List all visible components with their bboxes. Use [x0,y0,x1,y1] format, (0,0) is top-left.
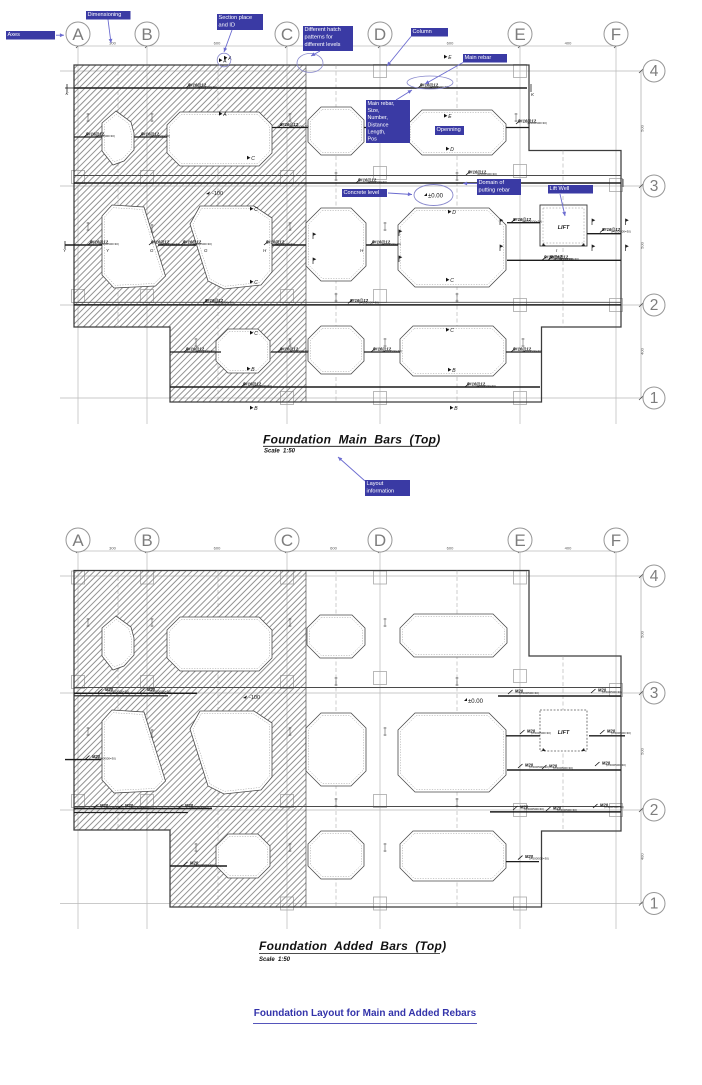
svg-text:(l=500/500=30): (l=500/500=30) [194,863,214,867]
svg-text:(l=500/500=30): (l=500/500=30) [557,808,577,812]
svg-text:Foundation Added Bars (Top): Foundation Added Bars (Top) [259,939,446,953]
svg-text:F: F [611,531,621,550]
svg-text:Scale 1:50: Scale 1:50 [264,449,296,455]
svg-text:Distance: Distance [368,122,389,128]
svg-text:A: A [222,112,227,118]
svg-text:600: 600 [214,41,221,46]
svg-text:(l=500/500=30): (l=500/500=30) [214,300,234,304]
svg-text:(l=500/500=30): (l=500/500=30) [359,300,379,304]
svg-text:500: 500 [640,630,645,637]
svg-text:(l=500/500=30): (l=500/500=30) [553,257,573,261]
svg-text:A: A [222,59,227,65]
svg-text:(l=500/500=30): (l=500/500=30) [382,349,402,353]
svg-text:(l=500/500=30): (l=500/500=30) [527,121,547,125]
svg-text:(l=500/500=30): (l=500/500=30) [189,805,209,809]
svg-text:(l=500/500=30): (l=500/500=30) [522,349,542,353]
svg-text:(l=500/500=30): (l=500/500=30) [275,242,295,246]
svg-text:LIFT: LIFT [558,225,570,231]
svg-text:(l=500/500=30): (l=500/500=30) [553,766,573,770]
svg-text:G: G [150,248,154,253]
svg-text:Scale 1:50: Scale 1:50 [259,957,291,963]
svg-text:Domain of: Domain of [479,180,505,186]
svg-text:putting rebar: putting rebar [479,188,511,194]
svg-text:4: 4 [650,568,659,585]
svg-text:C: C [251,156,255,162]
svg-text:Foundation Layout for Main and: Foundation Layout for Main and Added Reb… [254,1008,477,1019]
svg-text:(l=500/500=30): (l=500/500=30) [476,384,496,388]
svg-text:Lift Well: Lift Well [550,186,570,192]
svg-text:(l=500/500=30): (l=500/500=30) [151,689,171,693]
svg-text:F: F [611,25,621,44]
svg-text:500: 500 [640,124,645,131]
svg-text:2: 2 [650,297,659,314]
svg-text:1: 1 [650,390,659,407]
svg-text:G: G [204,248,208,253]
svg-text:(l=500/500=30): (l=500/500=30) [529,856,549,860]
svg-text:(l=500/500=30): (l=500/500=30) [96,756,116,760]
svg-text:(l=500/500=30): (l=500/500=30) [195,349,215,353]
svg-text:(l=500/500=30): (l=500/500=30) [150,134,170,138]
svg-text:C: C [450,328,454,334]
svg-text:E: E [514,25,525,44]
svg-text:600: 600 [447,546,454,551]
svg-text:600: 600 [214,546,221,551]
svg-text:400: 400 [565,41,572,46]
svg-text:Concrete level: Concrete level [344,190,380,196]
svg-text:(l=500/500=30): (l=500/500=30) [611,229,631,233]
svg-text:(l=500/500=30): (l=500/500=30) [95,134,115,138]
svg-text:B: B [141,25,152,44]
svg-text:(l=500/500=30): (l=500/500=30) [524,807,544,811]
svg-text:(l=500/500=30): (l=500/500=30) [99,242,119,246]
svg-text:(l=500/500=30): (l=500/500=30) [381,242,401,246]
svg-text:(l=500/500=30): (l=500/500=30) [477,172,497,176]
svg-text:different levels: different levels [305,42,341,48]
svg-text:(l=500/500=30): (l=500/500=30) [252,384,272,388]
svg-text:C: C [254,280,258,286]
svg-text:4: 4 [650,63,659,80]
svg-text:(l=500/500=30): (l=500/500=30) [611,731,631,735]
svg-text:Axes: Axes [8,32,21,38]
svg-text:C: C [450,278,454,284]
svg-text:(l=500/500=30): (l=500/500=30) [109,689,129,693]
svg-text:C: C [254,207,258,213]
svg-text:Size,: Size, [368,108,380,114]
svg-text:Column: Column [413,29,432,35]
svg-text:3: 3 [650,685,659,702]
svg-text:(l=500/500=30): (l=500/500=30) [129,805,149,809]
svg-text:information: information [367,489,395,495]
svg-text:400: 400 [640,853,645,860]
svg-text:Section place: Section place [219,15,253,21]
svg-text:B: B [141,531,152,550]
svg-text:Different hatch: Different hatch [305,27,341,33]
svg-text:1: 1 [650,896,659,913]
svg-text:600: 600 [447,41,454,46]
svg-text:A: A [72,531,84,550]
svg-text:2: 2 [650,802,659,819]
svg-text:Number,: Number, [368,115,389,121]
svg-text:Main rebar: Main rebar [465,55,492,61]
svg-text:Pos: Pos [368,137,378,143]
svg-text:(l=500/500=30): (l=500/500=30) [367,180,387,184]
svg-text:600: 600 [330,546,337,551]
svg-text:500: 500 [640,747,645,754]
svg-text:C: C [254,331,258,337]
svg-text:LIFT: LIFT [558,730,570,736]
svg-text:3: 3 [650,178,659,195]
svg-text:C: C [281,531,293,550]
svg-text:D: D [374,531,386,550]
svg-text:A: A [227,56,232,62]
svg-text:Length,: Length, [368,130,386,136]
svg-text:patterns for: patterns for [305,35,333,41]
svg-text:E: E [514,531,525,550]
svg-text:Foundation Main Bars (Top): Foundation Main Bars (Top) [263,432,441,446]
svg-text:(l=500/500=30): (l=500/500=30) [289,349,309,353]
svg-text:A: A [72,25,84,44]
svg-text:(l=500/500=30): (l=500/500=30) [606,763,626,767]
svg-text:-100: -100 [249,695,260,701]
svg-text:D: D [374,25,386,44]
svg-text:D: D [450,147,454,153]
svg-text:(l=500/500=30): (l=500/500=30) [602,690,622,694]
svg-text:(l=500/500=30): (l=500/500=30) [197,85,217,89]
svg-text:-100: -100 [212,191,223,197]
svg-text:±0.00: ±0.00 [468,699,484,705]
svg-text:±0.00: ±0.00 [428,194,444,200]
svg-text:(l=500/500=30): (l=500/500=30) [604,805,624,809]
svg-text:Main rebar,: Main rebar, [368,101,395,107]
svg-text:500: 500 [640,241,645,248]
svg-text:(l=500/500=30): (l=500/500=30) [192,242,212,246]
svg-text:400: 400 [565,546,572,551]
svg-text:(l=500/500=30): (l=500/500=30) [160,242,180,246]
svg-text:(l=500/500=30): (l=500/500=30) [289,124,309,128]
svg-text:Openning: Openning [437,127,461,133]
svg-text:D: D [452,210,456,216]
svg-text:300: 300 [109,546,116,551]
svg-text:Layout: Layout [367,481,384,487]
svg-text:Dimensioning: Dimensioning [88,12,122,18]
svg-text:and ID: and ID [219,23,235,29]
svg-text:C: C [281,25,293,44]
svg-text:(l=500/500=30): (l=500/500=30) [519,691,539,695]
svg-text:(l=500/500=30): (l=500/500=30) [522,220,542,224]
svg-text:(l=500/500=30): (l=500/500=30) [531,731,551,735]
svg-text:400: 400 [640,347,645,354]
